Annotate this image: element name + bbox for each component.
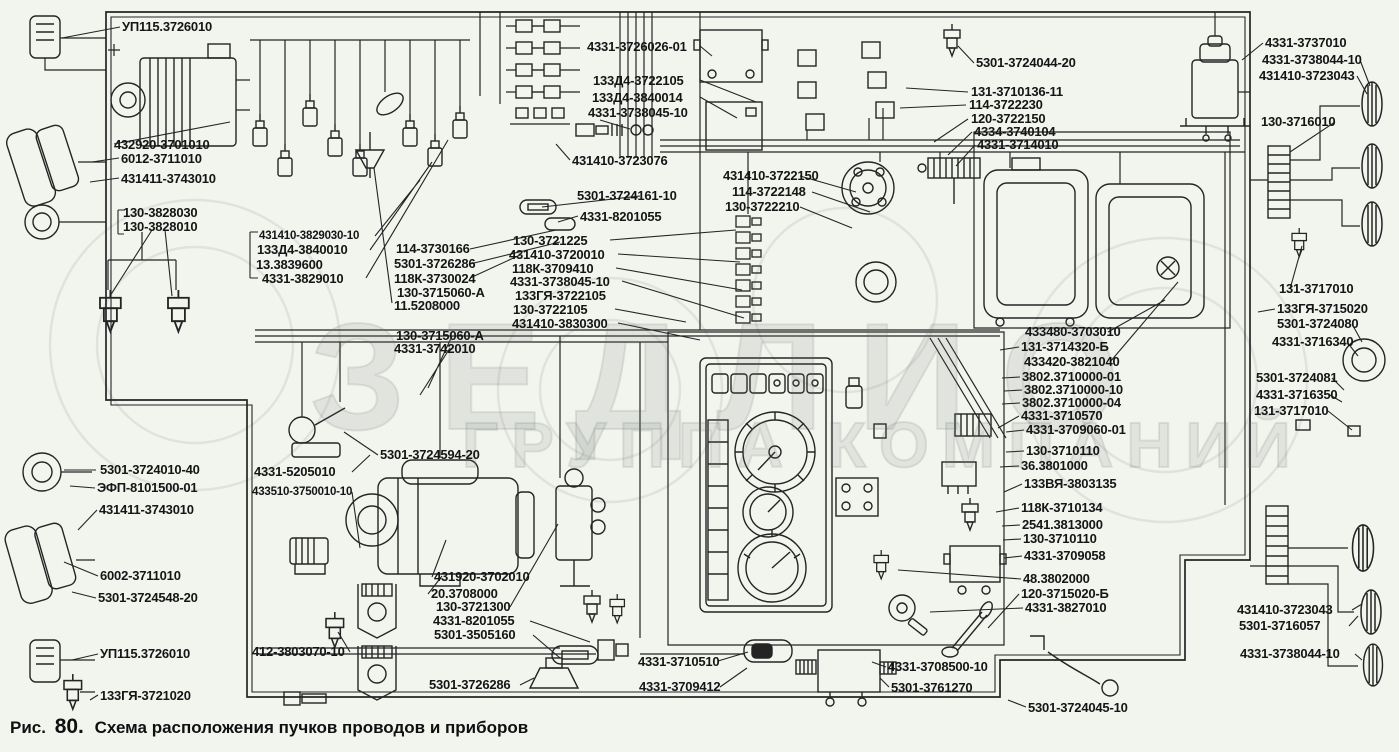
part-label: 114-3722148 bbox=[732, 185, 806, 199]
part-label: 5301-3724044-20 bbox=[976, 56, 1076, 70]
watermark-subtitle: ГРУППА КОМПАНИЙ bbox=[462, 408, 1304, 482]
generator bbox=[111, 44, 236, 146]
part-label: 133Д4-3722105 bbox=[593, 74, 684, 88]
part-label: 4331-3708500-10 bbox=[888, 660, 988, 674]
part-label: 133ГЯ-3722105 bbox=[515, 289, 606, 303]
part-label: УП115.3726010 bbox=[122, 20, 212, 34]
part-label: 130-3721300 bbox=[436, 600, 510, 614]
part-label: 4331-3737010 bbox=[1265, 36, 1346, 50]
part-label: 133Д4-3840010 bbox=[257, 243, 348, 257]
small-connector bbox=[1348, 426, 1360, 436]
wiring-diagram-page: ЗЕДЛИО ГРУППА КОМПАНИЙ УП115.37260104329… bbox=[0, 0, 1399, 752]
figure-caption-prefix: Рис. bbox=[10, 718, 46, 737]
part-label: 431410-3720010 bbox=[509, 248, 605, 262]
part-label: 131-3717010 bbox=[1279, 282, 1353, 296]
part-label: 4331-8201055 bbox=[433, 614, 514, 628]
cab-lamp bbox=[520, 200, 556, 214]
part-label: 431410-3722150 bbox=[723, 169, 819, 183]
starter-relay bbox=[1180, 36, 1250, 141]
part-label: 130-3828010 bbox=[123, 220, 197, 234]
part-label: 133ГЯ-3715020 bbox=[1277, 302, 1368, 316]
part-label: 114-3722230 bbox=[969, 98, 1043, 112]
part-label: 431920-3702010 bbox=[434, 570, 530, 584]
part-label: 4331-3726026-01 bbox=[587, 40, 687, 54]
part-label: 4331-3714010 bbox=[977, 138, 1058, 152]
part-label: 4331-3742010 bbox=[394, 342, 475, 356]
part-label: 131-3717010 bbox=[1254, 404, 1328, 418]
cab-lamp bbox=[545, 218, 575, 230]
part-label: 133ГЯ-3721020 bbox=[100, 689, 191, 703]
part-label: 4331-3710510 bbox=[638, 655, 719, 669]
inline-connector bbox=[598, 640, 628, 660]
part-label: 5301-3724161-10 bbox=[577, 189, 677, 203]
dome-lamp bbox=[530, 658, 578, 688]
part-label: 130-3716010 bbox=[1261, 115, 1335, 129]
headlamp bbox=[4, 118, 83, 208]
side-marker-lamp bbox=[30, 16, 60, 58]
part-label: 6012-3711010 bbox=[121, 152, 202, 166]
part-label: 6002-3711010 bbox=[100, 569, 181, 583]
inline-connector bbox=[576, 124, 653, 136]
part-label: 5301-3724594-20 bbox=[380, 448, 480, 462]
ignition-key bbox=[889, 595, 928, 636]
inline-connector bbox=[284, 692, 326, 705]
round-lamp bbox=[25, 205, 59, 239]
distributor bbox=[842, 162, 896, 302]
part-label: 4331-3716350 bbox=[1256, 388, 1337, 402]
part-label: ЭФП-8101500-01 bbox=[97, 481, 197, 495]
part-label: 2541.3813000 bbox=[1022, 518, 1103, 532]
sensor-plug bbox=[100, 290, 121, 332]
part-label: 5301-3726286 bbox=[429, 678, 510, 692]
connector-plug bbox=[64, 674, 82, 709]
solenoid bbox=[290, 538, 328, 574]
relay-box bbox=[706, 102, 762, 150]
part-label: 4331-3709412 bbox=[639, 680, 720, 694]
side-marker-lamp bbox=[30, 640, 60, 682]
figure-title: Схема расположения пучков проводов и при… bbox=[95, 718, 529, 737]
part-label: 130-3710110 bbox=[1026, 444, 1100, 458]
part-label: 120-3715020-Б bbox=[1021, 587, 1109, 601]
part-label: 433510-3750010-10 bbox=[252, 485, 352, 499]
part-label: 131-3714320-Б bbox=[1021, 340, 1109, 354]
part-label: 5301-3726286 bbox=[394, 257, 475, 271]
part-label: УП115.3726010 bbox=[100, 647, 190, 661]
part-label: 4331-5205010 bbox=[254, 465, 335, 479]
part-label: 4331-3738045-10 bbox=[588, 106, 688, 120]
ground-cable bbox=[1030, 636, 1118, 696]
headlamp bbox=[3, 517, 80, 606]
part-label: 431410-3829030-10 bbox=[259, 229, 359, 243]
part-label: 431410-3830300 bbox=[512, 317, 608, 331]
part-label: 4331-3827010 bbox=[1025, 601, 1106, 615]
part-label: 4331-3738045-10 bbox=[510, 275, 610, 289]
switch-blocks bbox=[798, 42, 894, 130]
part-label: 412-3803070-10 bbox=[252, 645, 345, 659]
fog-lamp bbox=[23, 453, 61, 491]
part-label: 4331-3709058 bbox=[1024, 549, 1105, 563]
part-label: 5301-3716057 bbox=[1239, 619, 1320, 633]
part-label: 5301-3761270 bbox=[891, 681, 972, 695]
part-label: 118К-3710134 bbox=[1021, 501, 1102, 515]
part-label: 133ВЯ-3803135 bbox=[1024, 477, 1116, 491]
part-label: 431410-3723043 bbox=[1259, 69, 1355, 83]
fuel-filter bbox=[358, 584, 396, 638]
part-label: 48.3802000 bbox=[1023, 572, 1090, 586]
plafond-lamp bbox=[552, 646, 598, 664]
lever bbox=[942, 600, 995, 657]
part-label: 4331-8201055 bbox=[580, 210, 661, 224]
part-label: 130-3828030 bbox=[123, 206, 197, 220]
connector-stack bbox=[516, 20, 564, 118]
flasher-relay bbox=[744, 640, 792, 662]
brake-cylinder bbox=[556, 469, 605, 586]
part-label: 5301-3505160 bbox=[434, 628, 515, 642]
part-label: 431411-3743010 bbox=[121, 172, 216, 186]
connector-strip bbox=[1268, 146, 1290, 218]
part-label: 13.3839600 bbox=[256, 258, 323, 272]
figure-number: 80. bbox=[55, 715, 84, 738]
part-label: 432920-3701010 bbox=[114, 138, 210, 152]
part-label: 431410-3723076 bbox=[572, 154, 668, 168]
relay-box bbox=[944, 546, 1006, 594]
part-label: 4331-3709060-01 bbox=[1026, 423, 1126, 437]
part-label: 431410-3723043 bbox=[1237, 603, 1333, 617]
part-label: 130-3722105 bbox=[513, 303, 587, 317]
part-label: 4331-3738044-10 bbox=[1240, 647, 1340, 661]
part-label: 118К-3730024 bbox=[394, 272, 475, 286]
part-label: 5301-3724080 bbox=[1277, 317, 1358, 331]
fuse-block bbox=[836, 478, 878, 516]
terminal-block bbox=[918, 158, 980, 204]
relay-box bbox=[694, 30, 768, 82]
part-label: 5301-3724548-20 bbox=[98, 591, 198, 605]
part-label: 36.3801000 bbox=[1021, 459, 1088, 473]
part-label: 431411-3743010 bbox=[99, 503, 194, 517]
part-label: 130-3710110 bbox=[1023, 532, 1097, 546]
part-label: 4331-3716340 bbox=[1272, 335, 1353, 349]
part-label: 5301-3724010-40 bbox=[100, 463, 200, 477]
part-label: 5301-3724081 bbox=[1256, 371, 1337, 385]
part-label: 4331-3710570 bbox=[1021, 409, 1102, 423]
part-label: 5301-3724045-10 bbox=[1028, 701, 1128, 715]
figure-caption: Рис. 80. Схема расположения пучков прово… bbox=[10, 715, 528, 739]
part-label: 133Д4-3840014 bbox=[592, 91, 683, 105]
part-label: 4331-3829010 bbox=[262, 272, 343, 286]
part-label: 433420-3821040 bbox=[1024, 355, 1120, 369]
connector-strip bbox=[1266, 506, 1288, 584]
mirror-disc bbox=[373, 89, 407, 119]
part-label: 114-3730166 bbox=[396, 242, 470, 256]
part-label: 130-3721225 bbox=[513, 234, 587, 248]
part-label: 4331-3738044-10 bbox=[1262, 53, 1362, 67]
part-label: 433480-3703010 bbox=[1025, 325, 1121, 339]
sensor-plug bbox=[168, 290, 189, 332]
part-label: 11.5208000 bbox=[394, 299, 460, 313]
part-label: 130-3722210 bbox=[725, 200, 799, 214]
